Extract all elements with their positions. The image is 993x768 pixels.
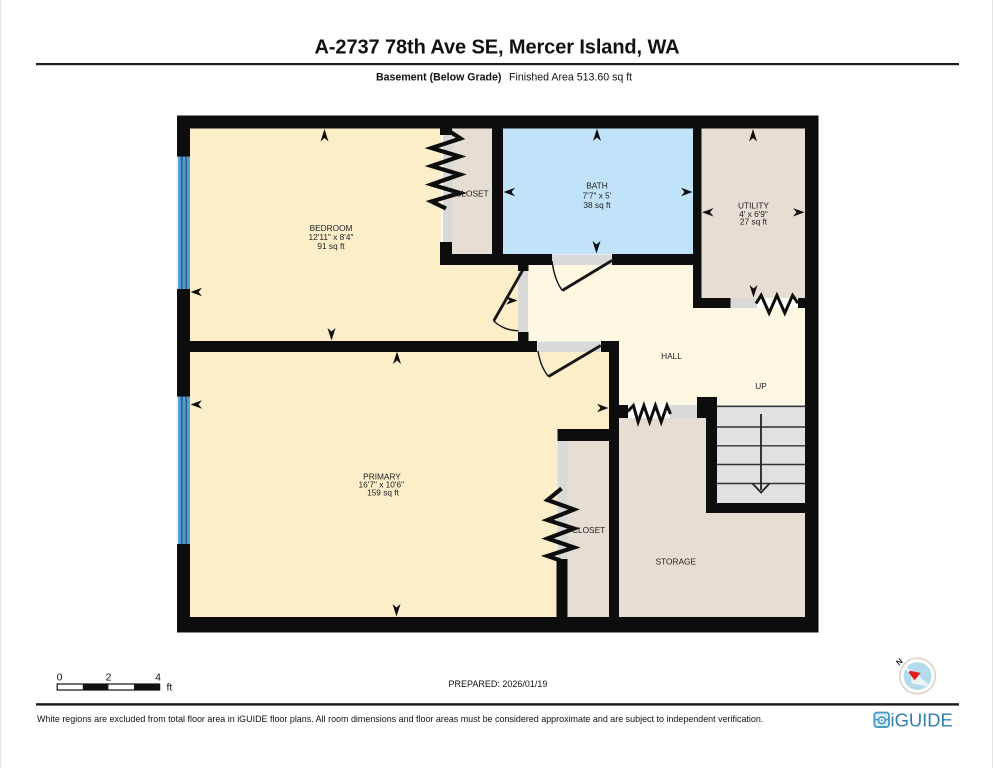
svg-text:A-2737 78th Ave SE, Mercer Isl: A-2737 78th Ave SE, Mercer Island, WA [315, 37, 680, 59]
svg-text:4: 4 [155, 672, 161, 684]
svg-text:ft: ft [167, 682, 173, 694]
svg-text:White regions are excluded fro: White regions are excluded from total fl… [37, 714, 763, 724]
svg-text:2: 2 [106, 672, 112, 684]
svg-text:91 sq ft: 91 sq ft [317, 241, 345, 251]
svg-text:27 sq ft: 27 sq ft [740, 217, 768, 227]
svg-text:HALL: HALL [661, 351, 682, 361]
svg-text:BATH: BATH [586, 181, 608, 191]
svg-text:CLOSET: CLOSET [572, 525, 605, 535]
svg-text:Finished Area 513.60 sq ft: Finished Area 513.60 sq ft [509, 72, 632, 84]
svg-text:UP: UP [755, 381, 767, 391]
svg-text:38 sq ft: 38 sq ft [583, 200, 611, 210]
svg-text:CLOSET: CLOSET [455, 189, 488, 199]
svg-text:0: 0 [57, 672, 63, 684]
svg-text:iGUIDE: iGUIDE [891, 710, 953, 731]
svg-text:7'7" x 5': 7'7" x 5' [583, 191, 612, 201]
svg-text:STORAGE: STORAGE [656, 557, 697, 567]
svg-text:PREPARED: 2026/01/19: PREPARED: 2026/01/19 [449, 679, 548, 689]
svg-text:Basement (Below Grade): Basement (Below Grade) [376, 72, 501, 84]
svg-text:159 sq ft: 159 sq ft [367, 488, 400, 498]
